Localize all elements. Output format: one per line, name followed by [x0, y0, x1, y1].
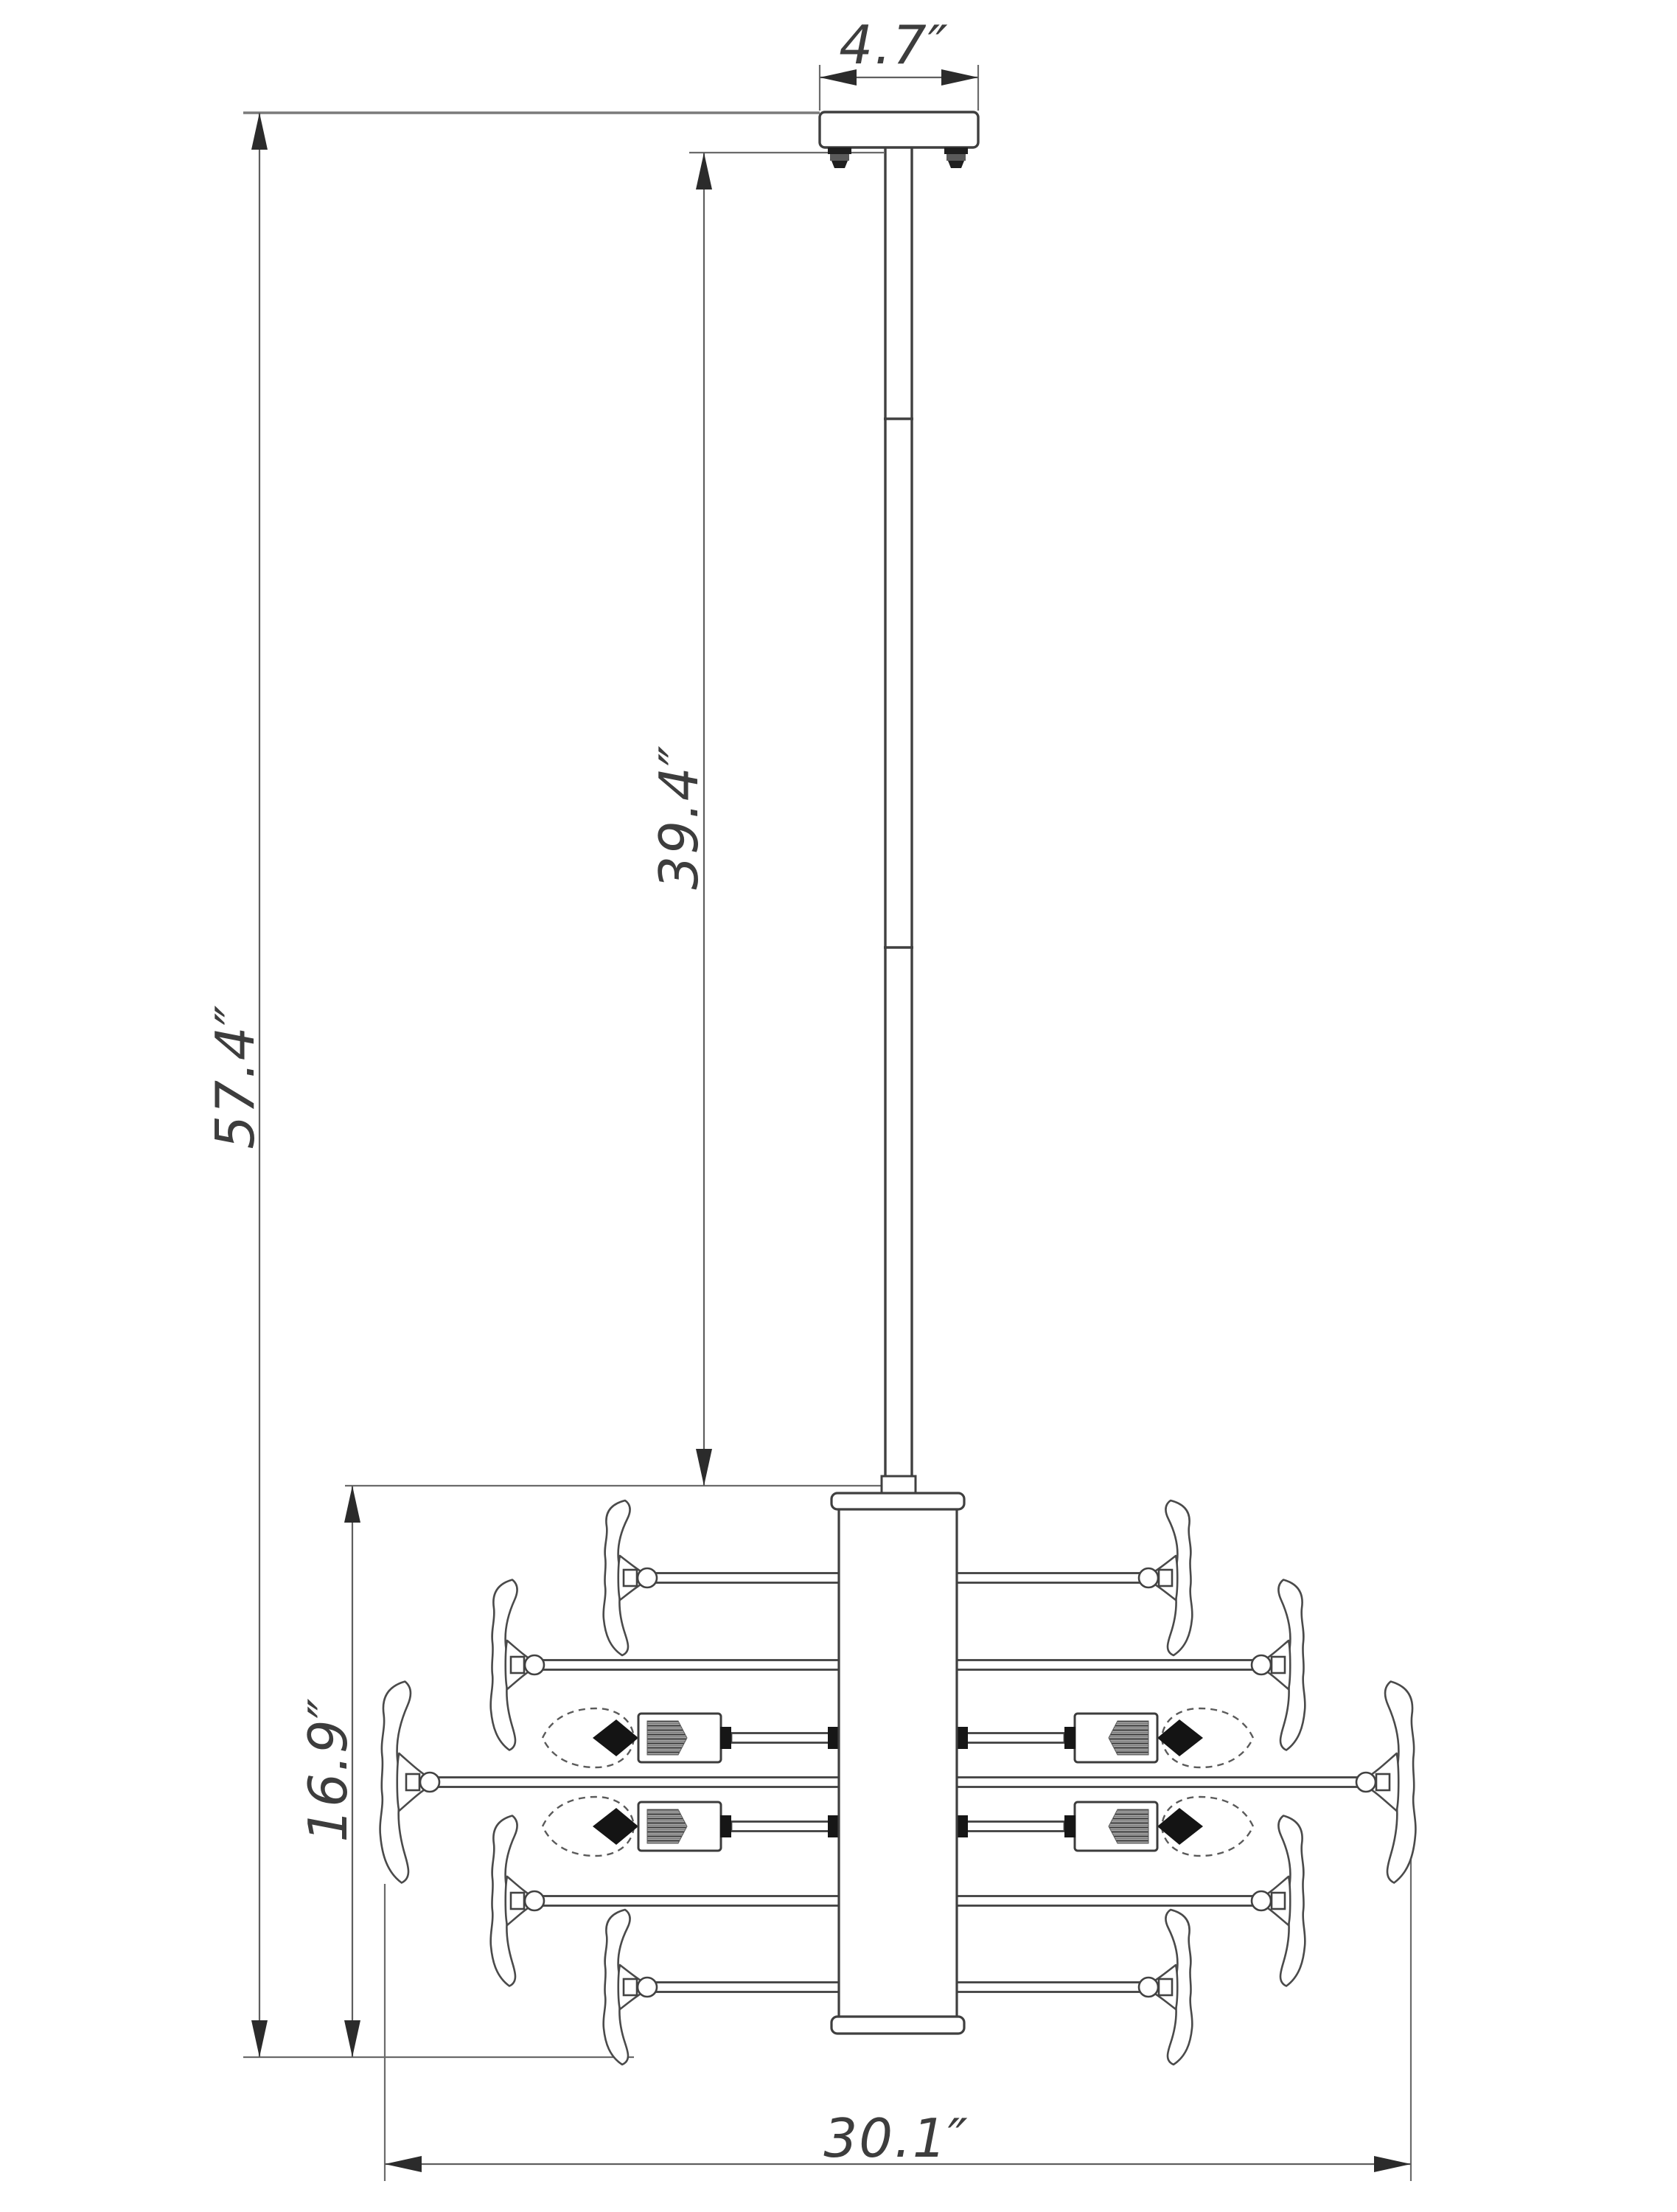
fixture-right-half	[957, 1500, 1415, 2065]
fixture-column	[831, 1493, 964, 2034]
drawing-sheet: 57.4″ 39.4″ 16.9″ 30.1″ 4.7″	[0, 0, 1677, 2212]
column-bottom-cap	[831, 2017, 964, 2034]
column-top-cap	[831, 1493, 964, 1509]
arrowhead-right	[1374, 2156, 1411, 2172]
body-width-label: 30.1″	[823, 2107, 969, 2169]
canopy-screw	[944, 147, 968, 168]
dimension-body-height: 16.9″	[297, 1486, 360, 2057]
chandelier-dimension-drawing: 57.4″ 39.4″ 16.9″ 30.1″ 4.7″	[0, 0, 1677, 2212]
canopy-width-label: 4.7″	[839, 14, 949, 76]
ceiling-canopy	[820, 112, 978, 168]
arrowhead-down	[696, 1449, 712, 1486]
dimension-canopy-width: 4.7″	[820, 14, 978, 111]
arrowhead-down	[251, 2020, 268, 2057]
body-height-label: 16.9″	[297, 1697, 359, 1842]
dimension-rod-height: 39.4″	[648, 153, 712, 1486]
dimension-overall-height: 57.4″	[204, 113, 268, 2057]
arrowhead-up	[696, 153, 712, 189]
rod-height-label: 39.4″	[648, 744, 710, 889]
arrowhead-up	[344, 1486, 360, 1523]
hanging-rod	[884, 147, 913, 1479]
rod-collar	[882, 1476, 916, 1494]
overall-height-label: 57.4″	[204, 1004, 266, 1149]
fixture-left-half	[380, 1500, 839, 2065]
dimension-body-width: 30.1″	[385, 2107, 1411, 2172]
arrowhead-down	[344, 2020, 360, 2057]
arrowhead-up	[251, 113, 268, 150]
canopy-screw	[828, 147, 851, 168]
arrowhead-left	[385, 2156, 422, 2172]
extension-lines	[243, 113, 1411, 2181]
